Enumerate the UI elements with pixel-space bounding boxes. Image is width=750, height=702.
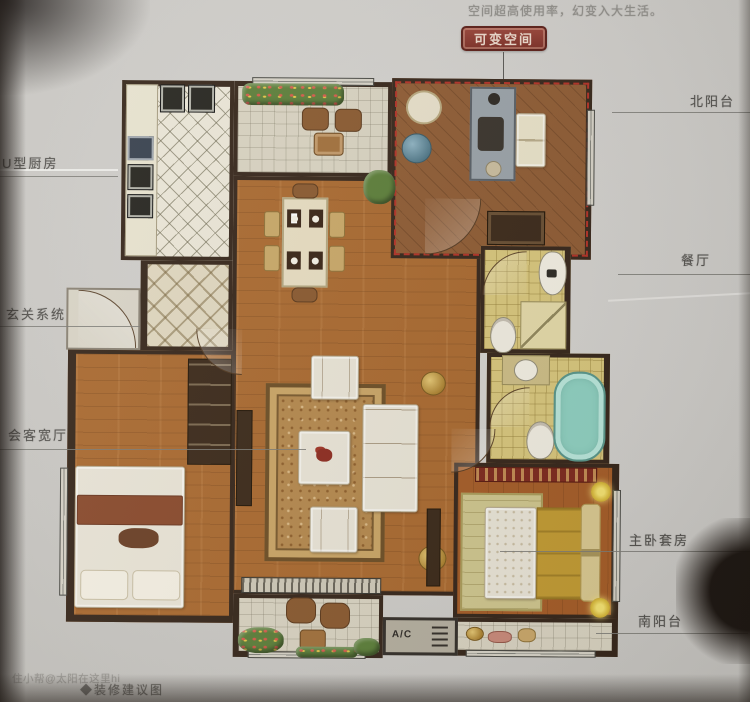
ac-vent-icon [432,626,448,646]
dining-plate-icon [312,258,319,265]
shower-area [520,301,566,349]
label-foyer: 玄关系统 [6,304,66,323]
master-bed-blanket [536,507,585,599]
balcony-decor [518,628,536,642]
kitchen-appliance-icon [128,136,154,160]
master-tv-cabinet [426,508,441,586]
armchair [311,356,359,400]
terrace-table [314,133,344,156]
label-kitchen: U型厨房 [2,153,58,172]
floor-plan: A/C [0,0,750,702]
balcony-planter-strip [241,577,381,594]
balcony-decor [466,627,484,641]
armchair [309,507,357,553]
leader-line-dining [618,274,750,275]
dining-plate-icon [291,215,298,222]
plan-title: ◆装修建议图 [80,681,164,698]
flex-daybed [516,113,546,167]
master-pillows [580,504,601,602]
master-window [612,490,621,602]
flower-centerpiece [316,449,332,462]
flex-cabinet [487,211,545,245]
leader-line-north-balcony [612,112,750,113]
label-master: 主卧套房 [629,530,689,549]
dining-chair [292,183,318,198]
nightstand-lamp [591,482,611,502]
balcony-plant [238,627,284,653]
side-table [421,371,446,395]
leader-line-south-balcony [596,633,748,634]
kitchen-sink-icon [160,84,185,112]
tv-cabinet [236,410,253,506]
dining-plate-icon [312,216,319,223]
vanity-basin [514,359,538,381]
bathroom-faucet-icon [547,269,557,277]
flex-desk-chair [478,117,504,151]
nightstand-lamp [590,598,610,618]
floor-plan-photo: 空间超高使用率，幻变入大生活。 可变空间 [0,0,750,702]
corner-plant [363,170,395,204]
bathtub [553,371,606,461]
dining-chair [264,211,280,237]
pillow [132,570,180,600]
toilet [490,317,516,353]
sofa [362,404,419,512]
leader-line-living [0,449,306,450]
balcony-chair [320,603,350,629]
label-dining: 餐厅 [681,250,711,269]
balcony-decor [488,631,512,643]
dining-chair [329,212,345,238]
flex-round-chair [406,90,442,124]
dining-chair [264,245,280,271]
flex-stool [485,161,501,177]
master-runner-rug [475,467,597,483]
label-north-balcony: 北阳台 [690,91,735,110]
kitchen-appliance-icon [127,164,153,190]
balcony-plant [296,646,358,657]
master-bed-sheet [484,507,537,599]
leader-line-foyer [0,326,140,327]
dining-plate-icon [291,257,298,264]
ac-label: A/C [392,629,412,640]
toilet [526,421,554,459]
leader-line-master [500,551,750,552]
bedroom-left-window [59,468,68,596]
terrace-planter [242,83,344,106]
kitchen-stove-icon [188,85,215,113]
leader-line-kitchen [0,176,118,177]
label-living: 会客宽厅 [8,425,68,444]
kitchen-appliance-icon [127,194,153,218]
flex-desk-lamp-icon [488,93,500,105]
dining-chair [329,246,345,272]
flex-side-table [402,133,432,163]
flex-space-window [586,110,595,206]
dining-chair [291,287,317,302]
bed-left-throw [119,528,159,548]
label-south-balcony: 南阳台 [638,611,683,630]
pillow [80,570,128,600]
balcony-window-right [466,650,596,658]
terrace-chair [335,109,362,132]
balcony-chair [286,597,316,623]
terrace-chair [302,107,329,130]
balcony-plant [354,638,380,656]
bed-left-blanket [77,495,183,526]
